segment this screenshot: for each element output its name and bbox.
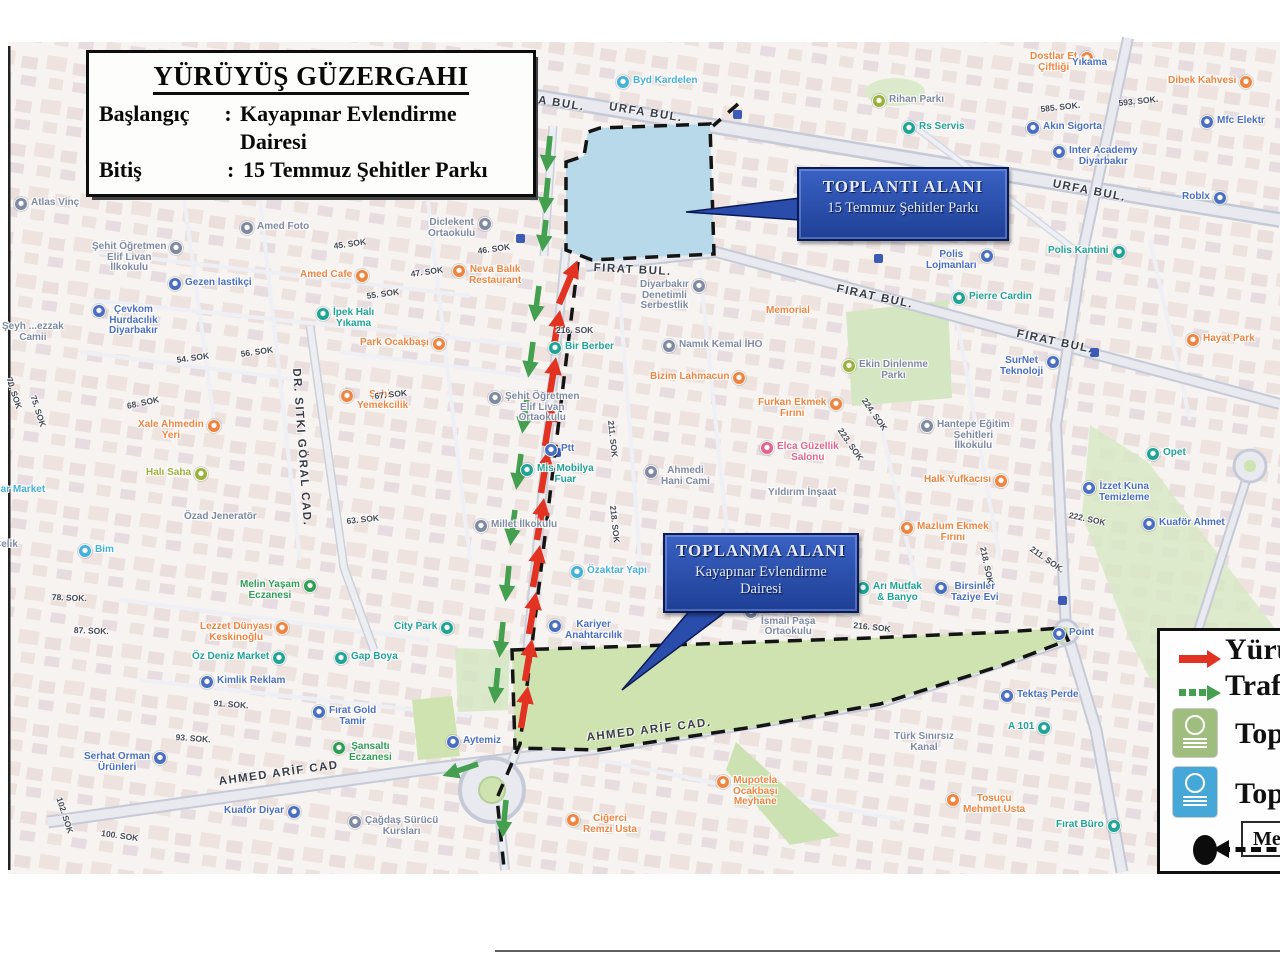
poi-label: City Park — [394, 622, 437, 633]
poi-label: Yıkama — [1072, 58, 1107, 69]
map-poi: A 101 — [1008, 722, 1051, 735]
map-poi: TosuçuMehmet Usta — [946, 794, 1025, 815]
poi-label: Ekin DinlenmeParkı — [859, 360, 928, 381]
poi-marker-icon — [452, 264, 466, 278]
poi-marker-icon — [616, 75, 630, 89]
street-label: 63. SOK — [346, 513, 379, 526]
map-poi: İzzet KunaTemizleme — [1082, 482, 1149, 503]
poi-label: Şehit ÖğretmenElif Livanİlkokulu — [92, 242, 166, 274]
street-label: 102. SOK — [54, 796, 75, 835]
poi-label: Fırat GoldTamir — [329, 706, 376, 727]
map-poi: AhmediHani Cami — [644, 466, 710, 487]
street-label: 68. SOK — [126, 394, 160, 411]
poi-marker-icon — [287, 805, 301, 819]
poi-label: MupotelaOcakbaşıMeyhane — [733, 776, 777, 808]
street-label: 45. SOK — [333, 236, 367, 250]
poi-label: DiyarbakırDenetimliSerbestlik — [640, 280, 689, 312]
poi-marker-icon — [570, 565, 584, 579]
start-value: Kayapınar Evlendirme Dairesi — [240, 100, 523, 156]
poi-marker-icon — [842, 359, 856, 373]
map-poi: Ekin DinlenmeParkı — [842, 360, 928, 381]
legend-walk-label: Yürüy — [1225, 633, 1280, 667]
poi-label: Akın Sigorta — [1043, 122, 1102, 133]
map-poi: DiclekentOrtaokulu — [428, 218, 492, 239]
poi-marker-icon — [548, 619, 562, 633]
poi-marker-icon — [952, 291, 966, 305]
map-poi: Pierre Cardin — [952, 292, 1032, 305]
poi-marker-icon — [1186, 333, 1200, 347]
poi-label: Bir Berber — [565, 342, 614, 353]
poi-label: Arı Mutfak& Banyo — [873, 582, 922, 603]
road-label: DR. SITKI GÖRAL CAD. — [290, 368, 313, 527]
poi-marker-icon — [316, 307, 330, 321]
poi-marker-icon — [78, 544, 92, 558]
poi-marker-icon — [900, 521, 914, 535]
map-poi: Serhat OrmanÜrünleri — [84, 752, 167, 773]
poi-label: Amed Cafe — [300, 270, 352, 281]
poi-marker-icon — [169, 241, 183, 255]
legend-gathering-label: Topla — [1235, 717, 1280, 751]
end-label: Bitiş — [99, 156, 227, 184]
poi-marker-icon — [332, 741, 346, 755]
street-label: 75. SOK — [28, 394, 48, 428]
start-label: Başlangıç — [99, 100, 224, 156]
route-start-row: Başlangıç : Kayapınar Evlendirme Dairesi — [99, 100, 523, 156]
road-label: FIRAT BUL. — [1016, 328, 1095, 356]
poi-marker-icon — [272, 651, 286, 665]
map-poi: Tektaş Perde — [1000, 690, 1079, 703]
poi-marker-icon — [194, 467, 208, 481]
map-poi: Yıldırım İnşaat — [768, 488, 836, 499]
scanned-route-map-page: Byd KardelenRihan ParkıDostlar EtÇiftliğ… — [0, 0, 1280, 960]
poi-marker-icon — [716, 775, 730, 789]
poi-label: SurNetTeknoloji — [1000, 356, 1043, 377]
map-poi: Lezzet DünyasıKeskinoğlu — [200, 622, 289, 643]
poi-marker-icon — [14, 197, 28, 211]
map-poi: Gezen lastikçi — [168, 278, 252, 291]
map-poi: Öz Deniz Market — [192, 652, 286, 665]
map-poi: Mfc Elektr — [1200, 116, 1265, 129]
poi-label: Furkan EkmekFırını — [758, 398, 826, 419]
poi-marker-icon — [1046, 355, 1060, 369]
poi-marker-icon — [348, 815, 362, 829]
road-label: FIRAT BUL. — [836, 283, 915, 311]
poi-label: BirsinlerTaziye Evi — [951, 582, 999, 603]
street-label: 93. SOK. — [175, 732, 211, 744]
map-poi: Millet İlkokulu — [474, 520, 557, 533]
map-poi: Gap Boya — [334, 652, 398, 665]
poi-label: Opet — [1163, 448, 1186, 459]
map-poi: Roblx — [1182, 192, 1227, 205]
street-label: 87. SOK. — [74, 625, 109, 636]
poi-marker-icon — [1213, 191, 1227, 205]
poi-label: Halı Saha — [146, 468, 191, 479]
map-poi: Park Ocakbaşı — [360, 338, 446, 351]
map-poi: Halı Saha — [146, 468, 208, 481]
poi-label: Melin YaşamEczanesi — [240, 580, 300, 601]
page-title: YÜRÜYÜŞ GÜZERGAHI — [99, 61, 523, 92]
map-poi: Melin YaşamEczanesi — [240, 580, 317, 601]
poi-label: İpek HalıYıkama — [333, 308, 374, 329]
map-poi: Rihan Parkı — [872, 95, 944, 108]
street-label: 100. SOK — [101, 828, 139, 843]
map-poi: PolisLojmanları — [926, 250, 994, 271]
map-poi: Namık Kemal İHO — [662, 340, 762, 353]
legend-meeting-label: Topla — [1235, 777, 1280, 811]
poi-label: AhmediHani Cami — [661, 466, 710, 487]
map-poi: City Park — [394, 622, 454, 635]
gathering-area-callout: TOPLANMA ALANI Kayapınar Evlendirme Dair… — [663, 533, 859, 613]
poi-marker-icon — [432, 337, 446, 351]
poi-label: Rs Servis — [919, 122, 965, 133]
poi-marker-icon — [1052, 627, 1066, 641]
poi-marker-icon — [872, 94, 886, 108]
meeting-area-callout: TOPLANTI ALANI 15 Temmuz Şehitler Parkı — [797, 167, 1009, 241]
street-label: 54. SOK — [176, 350, 210, 364]
map-poi: Yıkama — [1072, 58, 1107, 69]
map-poi: Çağdaş SürücüKursları — [348, 816, 438, 837]
poi-label: Kuaför Ahmet — [1159, 518, 1225, 529]
poi-label: PolisLojmanları — [926, 250, 977, 271]
map-poi: SurNetTeknoloji — [1000, 356, 1060, 377]
poi-label: Ptt — [561, 444, 574, 455]
map-poi: Neva BalıkRestaurant — [452, 265, 521, 286]
legend-gathering-badge-icon — [1173, 709, 1217, 757]
street-label: 78. SOK. — [52, 592, 87, 603]
poi-marker-icon — [920, 419, 934, 433]
street-label: 218. SOK — [608, 505, 622, 543]
legend-traffic-label: Trafi — [1225, 669, 1280, 703]
map-poi: Atlas Vinç — [14, 198, 79, 211]
poi-marker-icon — [980, 249, 994, 263]
map-poi: Kuaför Diyar — [224, 806, 301, 819]
map-poi: İpek HalıYıkama — [316, 308, 374, 329]
poi-label: Park Ocakbaşı — [360, 338, 429, 349]
poi-label: A 101 — [1008, 722, 1034, 733]
poi-marker-icon — [544, 443, 558, 457]
poi-label: ŞansaltıEczanesi — [349, 742, 392, 763]
map-poi: Mis MobilyaFuar — [520, 464, 594, 485]
map-poi: KariyerAnahtarcılık — [548, 620, 622, 641]
street-label: 218. SOK — [978, 546, 996, 585]
map-poi: Point — [1052, 628, 1094, 641]
street-label: 216. SOK — [556, 325, 593, 335]
street-label: 56. SOK — [240, 344, 274, 358]
poi-label: Dostlar EtÇiftliği — [1030, 52, 1077, 73]
scale-dashed-line — [1220, 847, 1280, 852]
map-poi: ÇevkomHurdacılıkDiyarbakır — [92, 305, 158, 337]
map-poi: Amed Cafe — [300, 270, 369, 283]
road-label: FIRAT BUL. — [593, 262, 672, 278]
poi-label: Özad Jeneratör — [184, 512, 257, 523]
poi-label: Lezzet DünyasıKeskinoğlu — [200, 622, 272, 643]
map-poi: Kimlik Reklam — [200, 676, 285, 689]
poi-marker-icon — [446, 735, 460, 749]
street-label: 585. SOK. — [1040, 100, 1081, 114]
poi-marker-icon — [275, 621, 289, 635]
map-poi: Bim — [78, 545, 114, 558]
poi-marker-icon — [474, 519, 488, 533]
street-label: 224. SOK — [860, 396, 890, 432]
poi-marker-icon — [153, 751, 167, 765]
poi-label: Özaktar Yapı — [587, 566, 647, 577]
poi-label: Şehit ÖğretmenElif LivanOrtaokulu — [505, 392, 579, 424]
poi-label: Rihan Parkı — [889, 95, 944, 106]
poi-label: Yıldırım İnşaat — [768, 488, 836, 499]
poi-marker-icon — [1052, 145, 1066, 159]
poi-marker-icon — [207, 419, 221, 433]
poi-label: Öz Deniz Market — [192, 652, 269, 663]
poi-label: Hantepe EğitimŞehitleriİlkokulu — [937, 420, 1010, 452]
map-poi: Çelik — [0, 540, 18, 551]
map-poi: Hantepe EğitimŞehitleriİlkokulu — [920, 420, 1010, 452]
poi-marker-icon — [994, 474, 1008, 488]
map-poi: Fırat GoldTamir — [312, 706, 376, 727]
map-poi: DiyarbakırDenetimliSerbestlik — [640, 280, 706, 312]
poi-label: Inter AcademyDiyarbakır — [1069, 146, 1138, 167]
street-label: 211. SOK — [606, 420, 620, 458]
poi-label: TosuçuMehmet Usta — [963, 794, 1025, 815]
poi-label: Bizim Lahmacun — [650, 372, 729, 383]
map-poi: Polis Kantini — [1048, 246, 1126, 259]
street-label: 47. SOK — [410, 264, 444, 278]
poi-marker-icon — [303, 579, 317, 593]
map-poi: Şeyh ...ezzakCamii — [2, 322, 64, 343]
poi-marker-icon — [566, 813, 580, 827]
map-poi: Aytemiz — [446, 736, 501, 749]
poi-label: Millet İlkokulu — [491, 520, 557, 531]
poi-label: ÇevkomHurdacılıkDiyarbakır — [109, 305, 158, 337]
poi-label: Bim — [95, 545, 114, 556]
poi-label: Kimlik Reklam — [217, 676, 285, 687]
poi-marker-icon — [1026, 121, 1040, 135]
poi-marker-icon — [760, 441, 774, 455]
street-label: 211. SOK. — [1028, 544, 1066, 575]
poi-label: Memorial — [766, 306, 810, 317]
map-poi: Akın Sigorta — [1026, 122, 1102, 135]
poi-marker-icon — [312, 705, 326, 719]
map-poi: Hayat Park — [1186, 334, 1255, 347]
map-poi: Furkan EkmekFırını — [758, 398, 843, 419]
poi-marker-icon — [1112, 245, 1126, 259]
poi-label: Gap Boya — [351, 652, 398, 663]
poi-label: Aytemiz — [463, 736, 501, 747]
map-poi: CiğerciRemzi Usta — [566, 814, 637, 835]
map-poi: Xale AhmedinYeri — [138, 420, 221, 441]
poi-label: Mazlum EkmekFırını — [917, 522, 989, 543]
street-label: 55. SOK — [366, 286, 400, 300]
road-label: AHMED ARİF CAD. — [586, 717, 712, 744]
end-value: 15 Temmuz Şehitler Parkı — [243, 156, 488, 184]
street-label: 216. SOK — [853, 620, 891, 634]
poi-label: Kuaför Diyar — [224, 806, 284, 817]
map-poi: Halk Yufkacısı — [924, 475, 1008, 488]
legend-meeting-badge-icon — [1173, 767, 1217, 817]
poi-marker-icon — [548, 341, 562, 355]
map-poi: Rs Servis — [902, 122, 965, 135]
poi-marker-icon — [1000, 689, 1014, 703]
map-poi: Mazlum EkmekFırını — [900, 522, 989, 543]
map-poi: Bir Berber — [548, 342, 614, 355]
map-poi: Bizim Lahmacun — [650, 372, 746, 385]
poi-label: Yağmar Market — [0, 485, 45, 496]
street-label: 70. SOK — [4, 376, 24, 410]
map-poi: Türk SınırsızKanal — [894, 732, 954, 753]
poi-label: İzzet KunaTemizleme — [1099, 482, 1149, 503]
poi-label: Hayat Park — [1203, 334, 1255, 345]
map-poi: Kuaför Ahmet — [1142, 518, 1225, 531]
map-poi: Yağmar Market — [0, 485, 45, 496]
route-end-row: Bitiş : 15 Temmuz Şehitler Parkı — [99, 156, 523, 184]
poi-marker-icon — [340, 389, 354, 403]
poi-marker-icon — [902, 121, 916, 135]
map-poi: Byd Kardelen — [616, 76, 697, 89]
road-label: URFA BUL. — [1052, 178, 1127, 204]
poi-label: Neva BalıkRestaurant — [469, 265, 521, 286]
poi-marker-icon — [334, 651, 348, 665]
poi-label: Dibek Kahvesi — [1168, 76, 1236, 87]
poi-label: Elca GüzellikSalonu — [777, 442, 839, 463]
poi-label: Byd Kardelen — [633, 76, 697, 87]
map-legend: Yürüy Trafi Topla Topla Me — [1157, 628, 1280, 874]
poi-marker-icon — [662, 339, 676, 353]
poi-label: Atlas Vinç — [31, 198, 79, 209]
poi-label: Amed Foto — [257, 222, 309, 233]
poi-marker-icon — [168, 277, 182, 291]
poi-label: DiclekentOrtaokulu — [428, 218, 475, 239]
poi-marker-icon — [1239, 75, 1253, 89]
map-poi: Memorial — [766, 306, 810, 317]
map-poi: BirsinlerTaziye Evi — [934, 582, 999, 603]
poi-label: Şeyh ...ezzakCamii — [2, 322, 64, 343]
poi-marker-icon — [355, 269, 369, 283]
map-poi: Dibek Kahvesi — [1168, 76, 1253, 89]
street-label: 91. SOK. — [213, 698, 249, 710]
poi-label: Polis Kantini — [1048, 246, 1109, 257]
poi-marker-icon — [200, 675, 214, 689]
street-label: 223. SOK — [836, 426, 866, 462]
road-label: URFA BUL. — [608, 101, 683, 124]
poi-label: Point — [1069, 628, 1094, 639]
poi-label: Mfc Elektr — [1217, 116, 1265, 127]
map-poi: Opet — [1146, 448, 1186, 461]
map-poi: Arı Mutfak& Banyo — [856, 582, 922, 603]
poi-label: Namık Kemal İHO — [679, 340, 762, 351]
route-title-box: YÜRÜYÜŞ GÜZERGAHI Başlangıç : Kayapınar … — [86, 50, 536, 197]
poi-marker-icon — [1142, 517, 1156, 531]
poi-marker-icon — [692, 279, 706, 293]
poi-label: Çağdaş SürücüKursları — [365, 816, 438, 837]
poi-label: Türk SınırsızKanal — [894, 732, 954, 753]
poi-label: Fırat Büro — [1056, 820, 1104, 831]
street-label: 222. SOK — [1068, 510, 1107, 528]
poi-marker-icon — [488, 391, 502, 405]
poi-label: Tektaş Perde — [1017, 690, 1079, 701]
poi-marker-icon — [732, 371, 746, 385]
poi-marker-icon — [1146, 447, 1160, 461]
poi-label: Roblx — [1182, 192, 1210, 203]
map-poi: Elca GüzellikSalonu — [760, 442, 839, 463]
poi-label: CiğerciRemzi Usta — [583, 814, 637, 835]
poi-marker-icon — [440, 621, 454, 635]
street-label: 593. SOK. — [1118, 94, 1159, 108]
map-poi: Fırat Büro — [1056, 820, 1121, 833]
street-label: 46. SOK — [477, 241, 511, 255]
poi-marker-icon — [1082, 481, 1096, 495]
poi-label: Pierre Cardin — [969, 292, 1032, 303]
poi-marker-icon — [478, 217, 492, 231]
map-poi: Şehit ÖğretmenElif Livanİlkokulu — [92, 242, 183, 274]
poi-label: Çelik — [0, 540, 18, 551]
poi-marker-icon — [644, 465, 658, 479]
map-poi: Şehit ÖğretmenElif LivanOrtaokulu — [488, 392, 579, 424]
poi-marker-icon — [1037, 721, 1051, 735]
poi-marker-icon — [829, 397, 843, 411]
map-poi: Ptt — [544, 444, 574, 457]
map-poi: Amed Foto — [240, 222, 309, 235]
poi-label: Mis MobilyaFuar — [537, 464, 594, 485]
poi-marker-icon — [520, 463, 534, 477]
poi-marker-icon — [240, 221, 254, 235]
map-poi: ŞansaltıEczanesi — [332, 742, 392, 763]
map-poi: Inter AcademyDiyarbakır — [1052, 146, 1138, 167]
poi-label: Halk Yufkacısı — [924, 475, 991, 486]
map-poi: MupotelaOcakbaşıMeyhane — [716, 776, 777, 808]
poi-label: Gezen lastikçi — [185, 278, 252, 289]
poi-label: KariyerAnahtarcılık — [565, 620, 622, 641]
poi-marker-icon — [946, 793, 960, 807]
poi-marker-icon — [92, 304, 106, 318]
map-poi: Özad Jeneratör — [184, 512, 257, 523]
road-label: AHMED ARİF CAD — [218, 759, 339, 788]
map-poi: Özaktar Yapı — [570, 566, 647, 579]
poi-marker-icon — [1200, 115, 1214, 129]
poi-label: Xale AhmedinYeri — [138, 420, 204, 441]
poi-marker-icon — [934, 581, 948, 595]
poi-marker-icon — [1107, 819, 1121, 833]
poi-label: Serhat OrmanÜrünleri — [84, 752, 150, 773]
